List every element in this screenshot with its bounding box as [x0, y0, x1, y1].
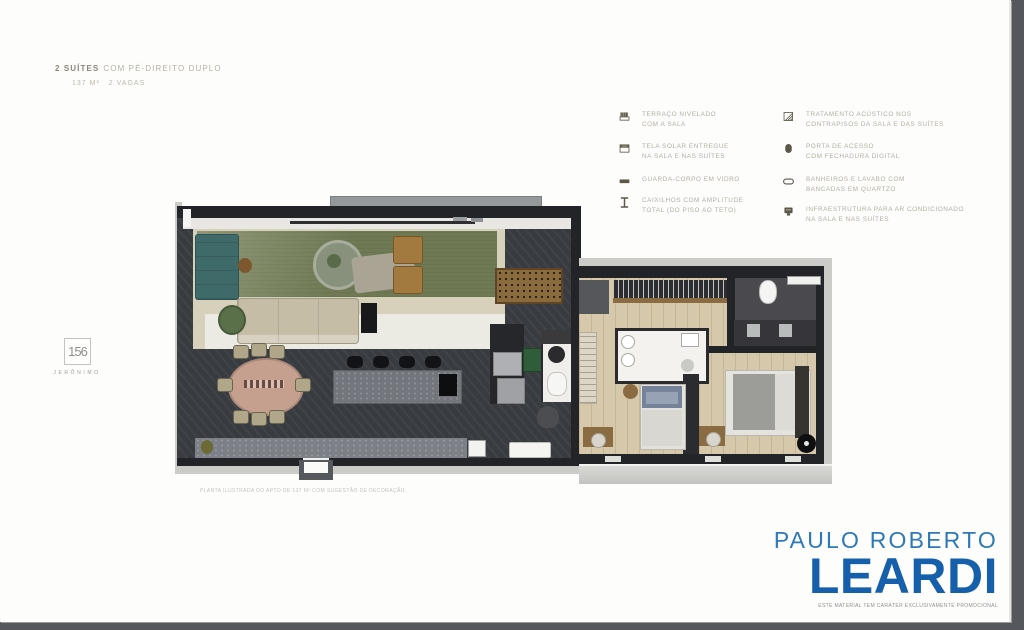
brand-tagline: ESTE MATERIAL TEM CARÁTER EXCLUSIVAMENTE…: [758, 603, 998, 609]
bar-stool: [347, 356, 363, 368]
appliance: [468, 440, 486, 457]
dining-chair: [269, 410, 285, 424]
legend-line: COM A SALA: [642, 121, 686, 128]
suite1-pillow: [646, 392, 678, 404]
building-logo-mark: 156: [64, 338, 91, 365]
dining-chair: [233, 410, 249, 424]
legend-line: CONTRAPISOS DA SALA E DAS SUÍTES: [806, 121, 944, 128]
counter-plant: [201, 440, 213, 454]
entry-mat: [304, 462, 328, 473]
dining-chair: [233, 345, 249, 359]
legend-item: TRATAMENTO ACÚSTICO NOSCONTRAPISOS DA SA…: [782, 110, 944, 129]
closet-shelf: [613, 298, 733, 303]
top-wall: [177, 206, 579, 218]
vanity-sink: [779, 324, 792, 337]
dining-chair: [251, 343, 267, 357]
window-opening: [705, 456, 721, 462]
window-opening: [785, 456, 801, 462]
wall-shelf: [471, 218, 483, 222]
ensuite-toilet: [681, 333, 699, 347]
closet-rack: [613, 280, 733, 298]
desk-chair: [591, 433, 606, 448]
legend-line: BANHEIROS E LAVABO COM: [806, 176, 905, 183]
legend-line: TERRAÇO NIVELADO: [642, 111, 716, 118]
toilet: [759, 280, 777, 304]
legend-line: BANCADAS EM QUARTZO: [806, 186, 896, 193]
powder-room-toilet: [547, 372, 567, 396]
wine-rack: [495, 268, 563, 304]
ensuite-sink: [621, 353, 635, 367]
page-title: 2 SUÍTESCOM PÉ-DIREITO DUPLO: [55, 64, 222, 73]
nightstand: [623, 384, 638, 399]
outer-wall-top-right: [579, 258, 832, 266]
window-line: [290, 221, 475, 224]
suite1-blanket: [642, 410, 682, 446]
desk-chair: [706, 432, 721, 447]
parking-value: 2 VAGAS: [109, 80, 145, 87]
building-number: 156: [68, 344, 87, 359]
legend-line: PORTA DE ACESSO: [806, 143, 874, 150]
chaise-lounge: [195, 234, 239, 300]
legend-line: COM FECHADURA DIGITAL: [806, 153, 900, 160]
legend-item: PORTA DE ACESSOCOM FECHADURA DIGITAL: [782, 142, 900, 161]
solar-screen-icon: [618, 142, 632, 156]
kitchen-counter: [195, 438, 467, 458]
ensuite-sink: [621, 335, 635, 349]
window-opening: [605, 456, 621, 462]
legend-item: BANHEIROS E LAVABO COMBANCADAS EM QUARTZ…: [782, 175, 905, 194]
table-runner: [244, 380, 284, 388]
title-detail: COM PÉ-DIREITO DUPLO: [103, 64, 221, 73]
legend-item: TELA SOLAR ENTREGUENA SALA E NAS SUÍTES: [618, 142, 729, 161]
floorplan-caption: PLANTA ILUSTRADA DO APTO DE 137 M² COM S…: [200, 488, 407, 494]
refrigerator: [497, 378, 525, 404]
dining-chair: [217, 378, 233, 392]
bar-stool: [399, 356, 415, 368]
vanity-sink: [747, 324, 760, 337]
dining-chair: [251, 412, 267, 426]
bench: [509, 442, 551, 458]
digital-lock-icon: [782, 142, 796, 156]
bath-shelf: [787, 276, 821, 285]
wall-tv: [453, 217, 467, 221]
speaker: [361, 303, 377, 333]
legend-line: TRATAMENTO ACÚSTICO NOS: [806, 111, 912, 118]
bar-stool: [373, 356, 389, 368]
outer-wall-right: [824, 258, 832, 478]
oven: [493, 352, 522, 376]
stool-center: [804, 441, 809, 446]
legend-line: TELA SOLAR ENTREGUE: [642, 143, 729, 150]
shower-drain: [681, 359, 694, 372]
title-suites: 2 SUÍTES: [55, 64, 99, 73]
accent-chair: [393, 266, 423, 294]
legend-line: NA SALA E NAS SUÍTES: [642, 153, 725, 160]
sofa: [237, 298, 359, 344]
potted-plant: [218, 305, 246, 335]
suite2-pillows: [775, 374, 795, 430]
coffee-table-decor: [327, 254, 341, 268]
brochure-page: 2 SUÍTESCOM PÉ-DIREITO DUPLO 137 M²2 VAG…: [0, 0, 1011, 622]
brand-logo: PAULO ROBERTO LEARDI ESTE MATERIAL TEM C…: [758, 527, 998, 609]
hall-cabinet: [579, 280, 609, 314]
brand-name-main: LEARDI: [758, 553, 998, 600]
legend-line: GUARDA-CORPO EM VIDRO: [642, 176, 740, 183]
side-table: [238, 258, 252, 273]
outer-wall-bottom: [175, 466, 585, 474]
suite2-top-wall: [699, 346, 824, 353]
legend-item: GUARDA-CORPO EM VIDRO: [618, 175, 740, 189]
quartz-countertop-icon: [782, 175, 796, 189]
accent-chair: [393, 236, 423, 264]
legend-item: TERRAÇO NIVELADOCOM A SALA: [618, 110, 716, 129]
powder-room-sink: [548, 346, 565, 363]
powder-room-counter: [541, 330, 571, 344]
suites-right-wall: [816, 266, 824, 458]
page-backdrop: { "header": { "title_bold": "2 SUÍTES", …: [0, 0, 1024, 630]
linen-closet: [579, 332, 597, 404]
island-sink: [439, 374, 457, 396]
dining-chair: [269, 345, 285, 359]
acoustic-floor-icon: [782, 110, 796, 124]
lounge-chair: [537, 406, 559, 428]
glass-railing-icon: [618, 175, 632, 189]
floor-plan: [175, 196, 832, 482]
dining-chair: [295, 378, 311, 392]
wall-notch: [183, 209, 191, 227]
suite2-headboard: [795, 366, 809, 438]
balcony-ledge: [579, 464, 832, 484]
area-value: 137 M²: [72, 80, 100, 87]
bar-stool: [425, 356, 441, 368]
building-name: JERÔNIMO: [40, 370, 114, 376]
page-subtitle: 137 M²2 VAGAS: [72, 80, 154, 87]
terrace-icon: [618, 110, 632, 124]
